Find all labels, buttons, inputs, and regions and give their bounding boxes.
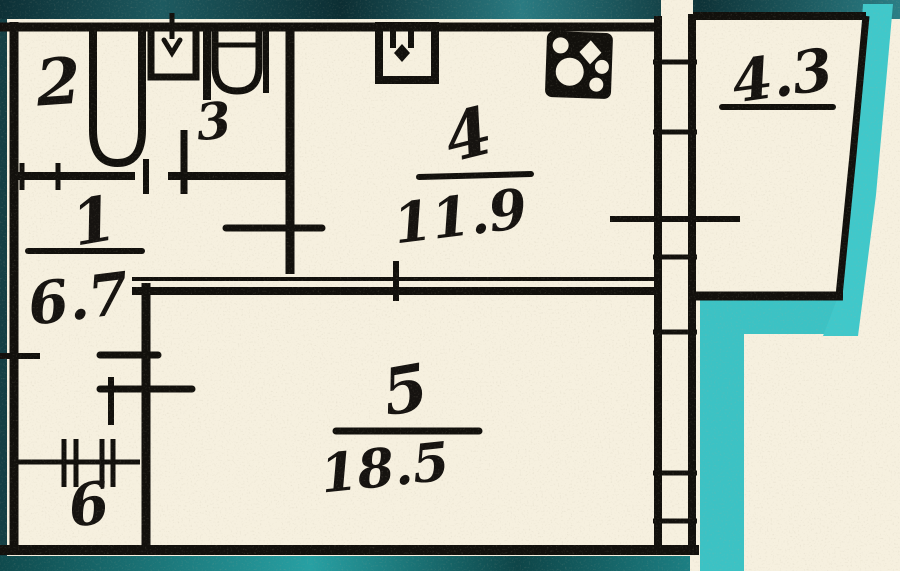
floor-plan-svg: 2 3 1 6.7 4 11.9 5 18.5 6 4.3 (0, 0, 900, 571)
paper-noise-overlay (0, 0, 900, 571)
floor-plan-scan: 2 3 1 6.7 4 11.9 5 18.5 6 4.3 (0, 0, 900, 571)
